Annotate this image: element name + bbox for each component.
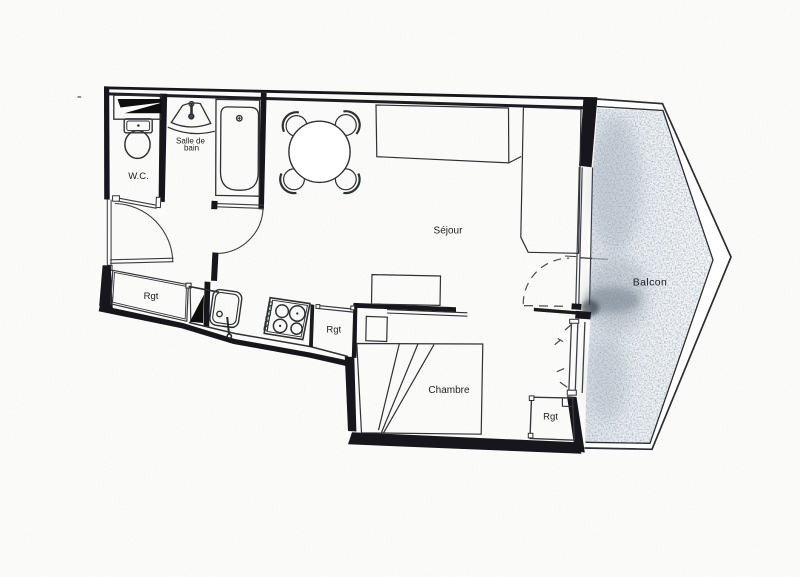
svg-text:Rgt: Rgt xyxy=(326,325,341,336)
svg-text:Rgt: Rgt xyxy=(543,412,558,423)
svg-text:W.C.: W.C. xyxy=(128,171,149,182)
svg-text:Rgt: Rgt xyxy=(144,291,159,302)
svg-text:Séjour: Séjour xyxy=(434,226,464,237)
svg-text:Chambre: Chambre xyxy=(428,385,470,396)
svg-text:bain: bain xyxy=(184,143,199,152)
svg-text:Balcon: Balcon xyxy=(633,277,668,289)
